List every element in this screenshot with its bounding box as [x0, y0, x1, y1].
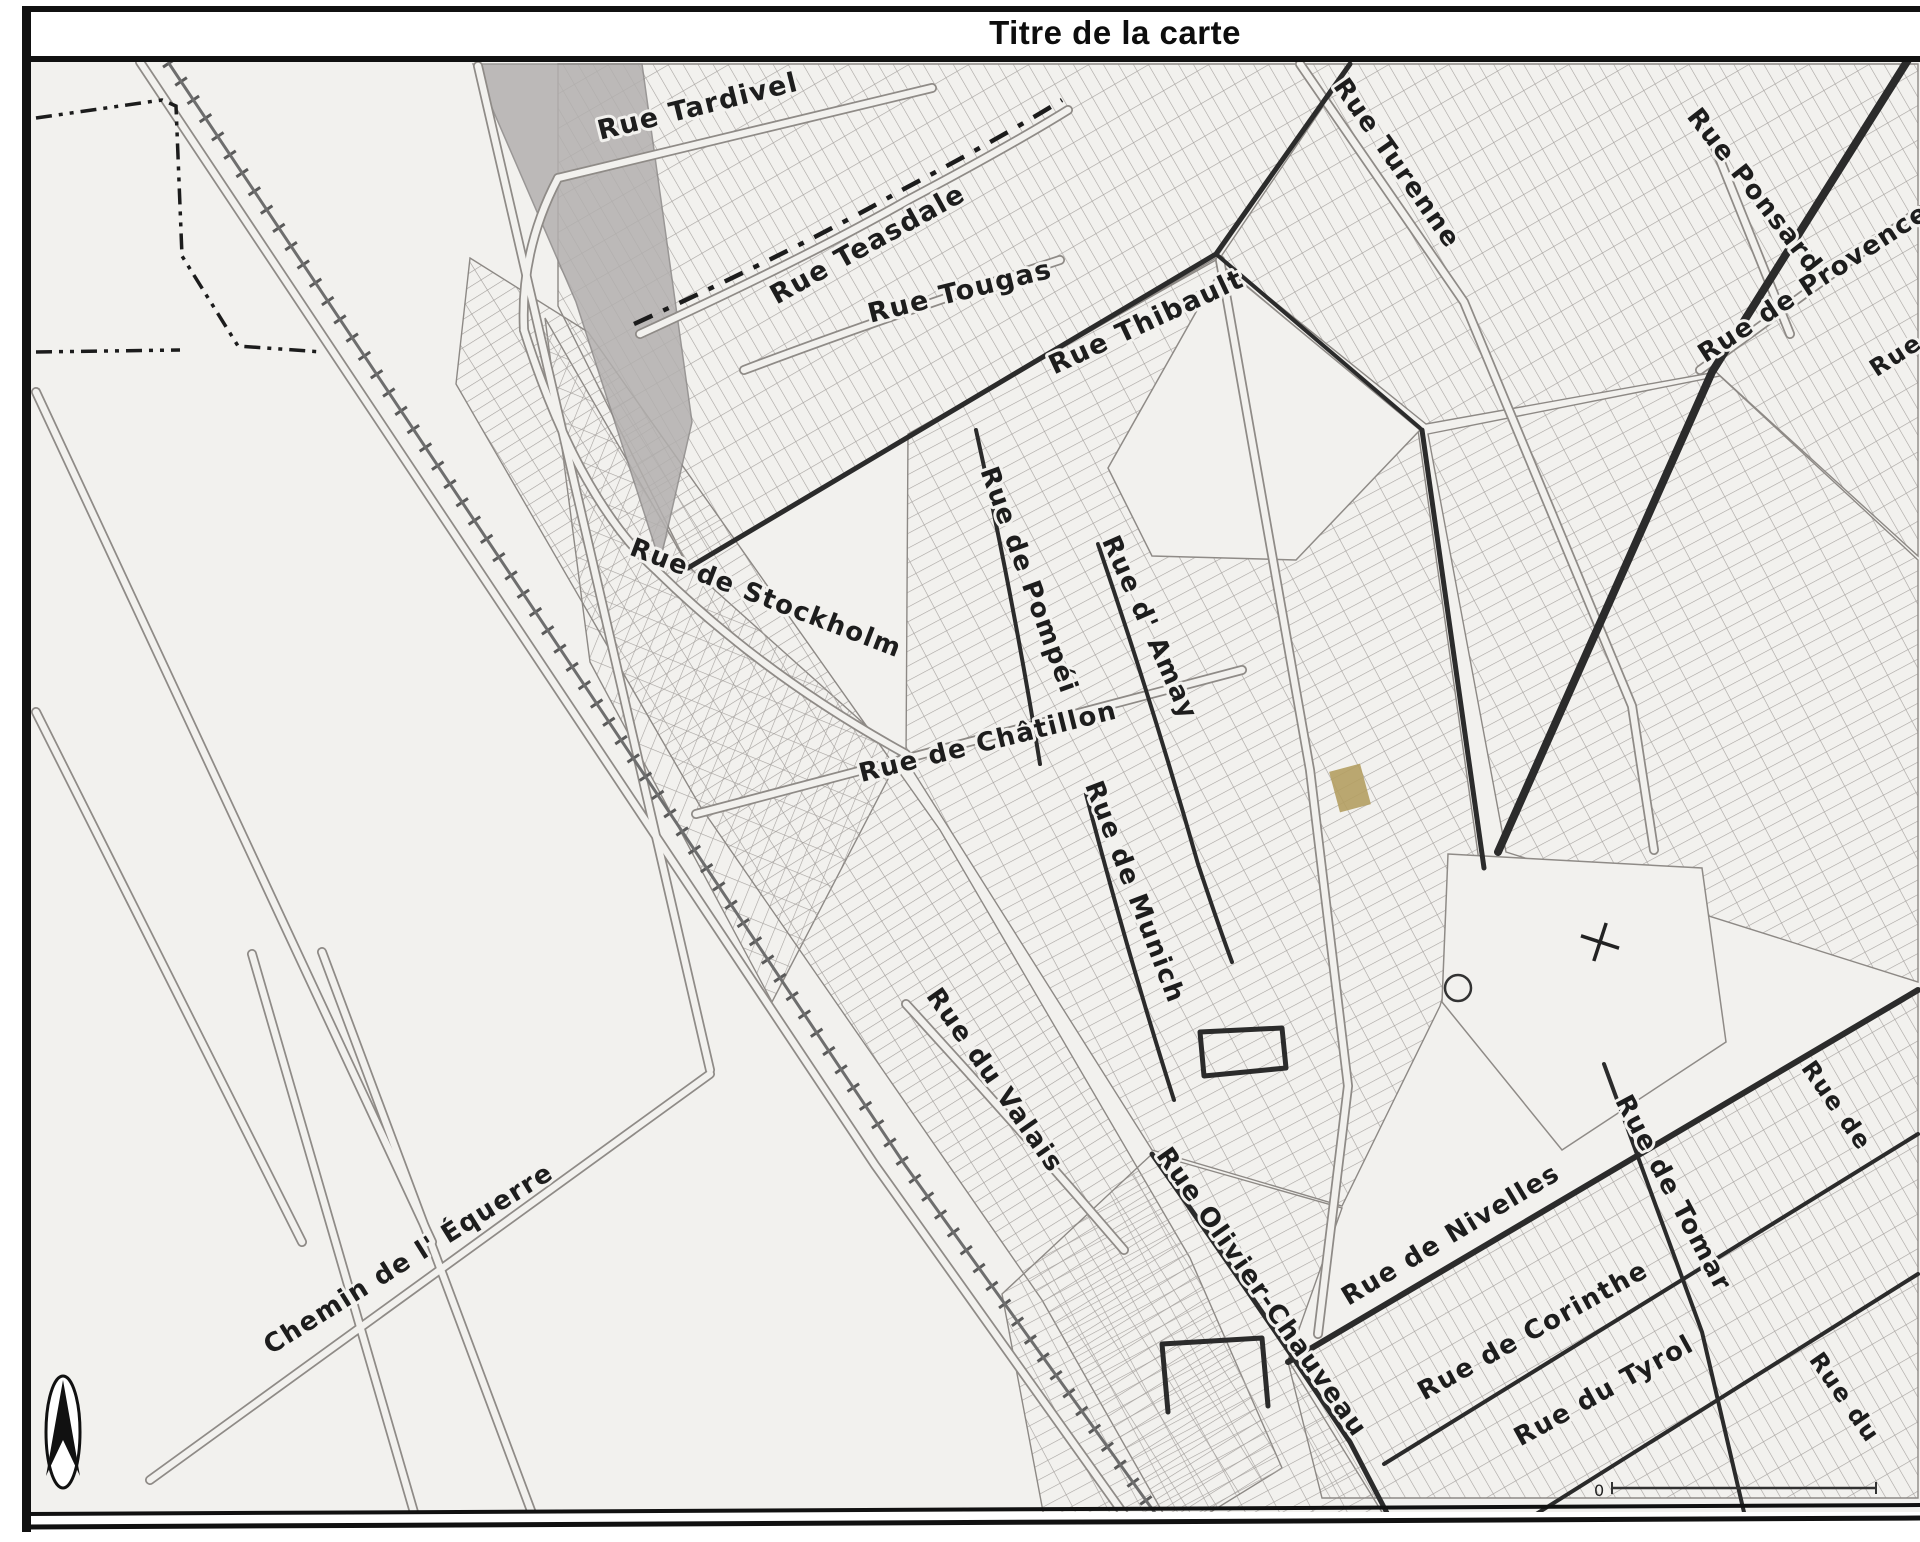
frame-title-underline: [24, 56, 1920, 62]
title-band: [24, 12, 1920, 56]
map-canvas: Rue Tardivel Rue Teasdale Rue Tougas Rue…: [0, 0, 1920, 1542]
scale-zero-label: 0: [1594, 1481, 1604, 1500]
map-title: Titre de la carte: [989, 14, 1241, 51]
north-arrow-icon: [46, 1376, 80, 1488]
scanned-map-page: Rue Tardivel Rue Teasdale Rue Tougas Rue…: [0, 0, 1920, 1542]
frame-bottom-line-2: [28, 1518, 1920, 1527]
frame-top-line: [24, 6, 1920, 12]
frame-left-bar: [22, 6, 31, 1532]
